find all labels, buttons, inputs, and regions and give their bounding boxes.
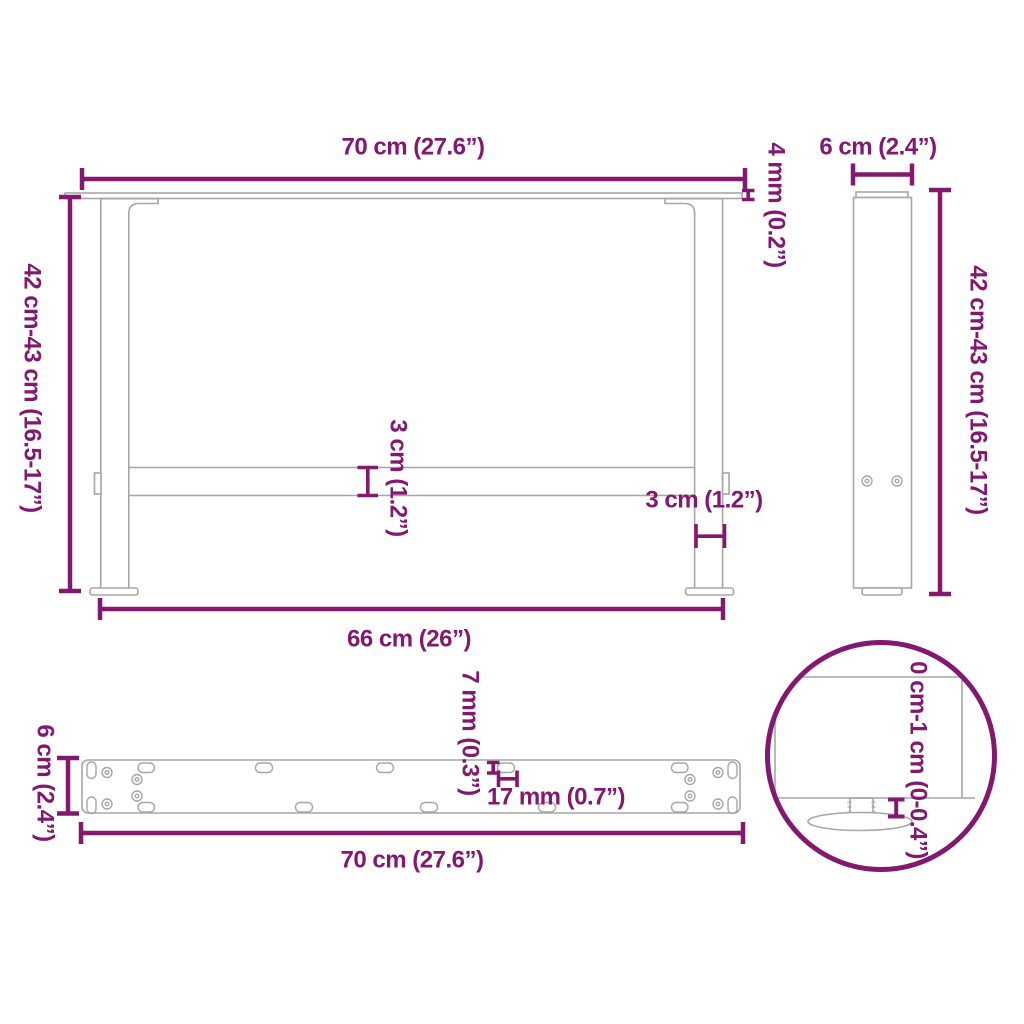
side-height-label: 42 cm-43 cm (16.5-17”) [965,265,992,514]
side-leg-body [854,198,912,589]
plate-width-label: 70 cm (27.6”) [341,846,484,873]
front-right-foot [686,588,734,595]
top-plate-thickness-label: 4 mm (0.2”) [763,142,790,267]
side-depth-dimension [853,164,912,186]
front-bottom-width-label: 66 cm (26”) [347,625,471,652]
plate-depth-label: 6 cm (2.4”) [32,724,59,841]
crossbar-thickness-marker [358,468,379,496]
front-bottom-width-dimension [100,598,723,620]
detail-leg-outline [766,677,975,798]
side-view-drawing [854,192,912,595]
slot-length-label: 17 mm (0.7”) [487,783,625,810]
front-top-width-label: 70 cm (27.6”) [342,133,485,160]
front-left-foot [90,588,138,595]
front-top-width-dimension [82,168,745,190]
detail-adjustment-label: 0 cm-1 cm (0-0.4”) [905,661,932,859]
side-foot [862,588,902,595]
front-left-leg [101,199,158,588]
detail-thread-marks [848,802,876,812]
mounting-plate [82,760,740,813]
leg-thickness-label: 3 cm (1.2”) [645,486,762,513]
plate-width-dimension [81,822,743,844]
side-top-flange [856,192,908,198]
front-height-label: 42 cm-43 cm (16.5-17”) [19,263,46,512]
crossbar-bracket-left [95,473,102,494]
slot-width-label: 7 mm (0.3”) [457,670,484,795]
furniture-dimension-diagram: 0 cm-1 cm (0-0.4”) 70 cm (27.6”) 42 cm-4… [0,0,1024,1024]
foot-detail-view: 0 cm-1 cm (0-0.4”) [766,643,995,870]
front-height-dimension [59,197,81,591]
side-height-dimension [929,190,951,594]
side-depth-label: 6 cm (2.4”) [819,133,936,160]
mounting-plate-top-view [82,760,740,814]
plate-depth-dimension [57,758,79,814]
technical-drawing-page: 0 cm-1 cm (0-0.4”) 70 cm (27.6”) 42 cm-4… [0,0,1024,1024]
tabletop-edge [65,193,742,199]
top-plate-thickness-marker [742,191,755,200]
leg-thickness-marker [696,524,725,548]
front-right-leg [665,199,723,588]
crossbar-thickness-label: 3 cm (1.2”) [385,419,412,536]
